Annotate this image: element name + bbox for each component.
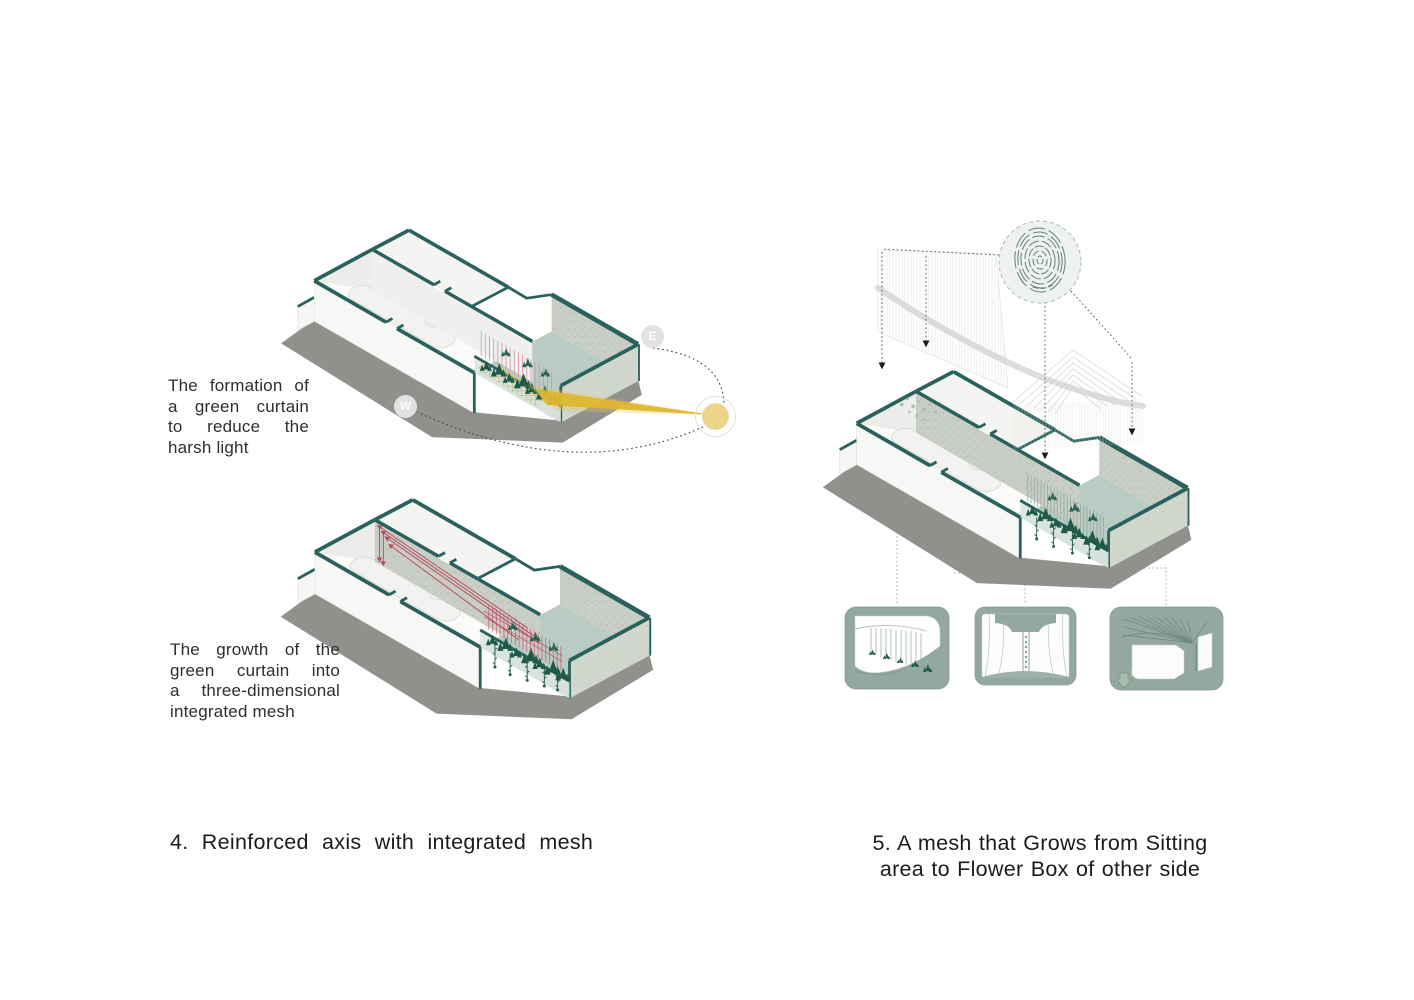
- east-marker-label: E: [649, 331, 657, 343]
- architecture-diagram-page: { "left_column": { "note_formation": ["T…: [0, 0, 1414, 1000]
- note-formation-line: harsh light: [168, 438, 309, 459]
- detail-frame-2: [975, 607, 1076, 685]
- note-formation-line: a green curtain: [168, 397, 309, 418]
- note-formation-line: The formation of: [168, 376, 309, 397]
- west-marker: W: [394, 395, 417, 418]
- caption-figure-5-line: area to Flower Box of other side: [840, 856, 1240, 882]
- detail-frame-1: [845, 607, 949, 689]
- diagram-formation-sun: [280, 185, 760, 465]
- note-growth-line: green curtain into: [170, 661, 340, 682]
- note-growth-line: integrated mesh: [170, 702, 340, 723]
- note-growth-line: a three-dimensional: [170, 681, 340, 702]
- note-formation: The formation of a green curtain to redu…: [168, 376, 309, 458]
- detail-frame-3: [1110, 607, 1223, 690]
- note-formation-line: to reduce the: [168, 417, 309, 438]
- diagram-mesh-sitting-area: [808, 192, 1232, 707]
- east-marker: E: [641, 325, 664, 348]
- note-growth-line: The growth of the: [170, 640, 340, 661]
- fingerprint-mesh-detail-icon: [999, 221, 1081, 303]
- sun-icon: [702, 403, 729, 430]
- caption-figure-5: 5. A mesh that Grows from Sitting area t…: [840, 830, 1240, 882]
- note-growth: The growth of the green curtain into a t…: [170, 640, 340, 722]
- caption-figure-5-line: 5. A mesh that Grows from Sitting: [840, 830, 1240, 856]
- west-marker-label: W: [400, 401, 411, 413]
- diagram-growth-mesh: [280, 462, 760, 737]
- caption-figure-4: 4. Reinforced axis with integrated mesh: [170, 830, 593, 855]
